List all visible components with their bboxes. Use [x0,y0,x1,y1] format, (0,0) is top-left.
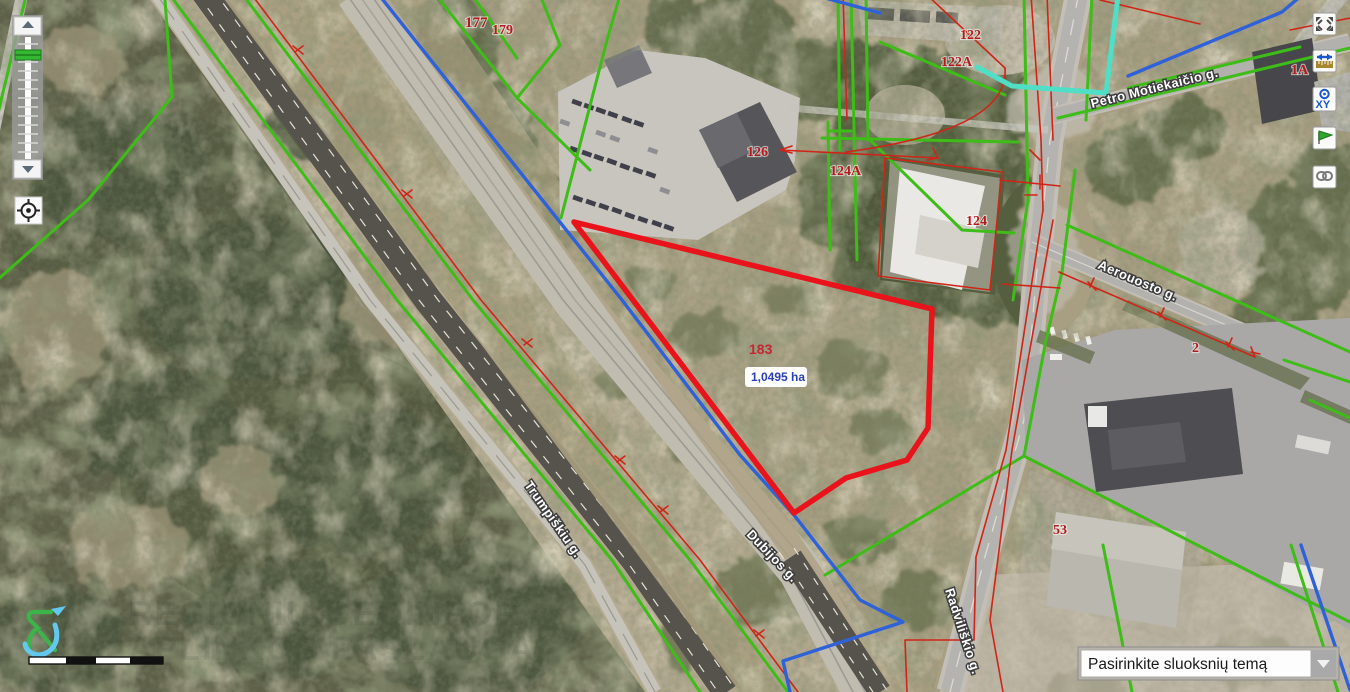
svg-text:126: 126 [747,145,768,160]
svg-text:XY: XY [1316,99,1331,111]
svg-text:183: 183 [749,341,773,357]
svg-text:REGIONIŲ GEOINFOR: REGIONIŲ GEOINFOR [128,595,521,633]
svg-text:122: 122 [960,28,981,43]
svg-text:1,0495 ha: 1,0495 ha [751,370,805,384]
svg-text:53: 53 [1053,523,1067,538]
svg-text:179: 179 [492,23,513,38]
svg-text:177: 177 [465,15,488,31]
svg-text:APLINKOS PASLAUGA: APLINKOS PASLAUGA [128,630,535,668]
svg-text:122A: 122A [941,55,973,70]
svg-text:124A: 124A [830,164,862,179]
svg-text:2: 2 [1192,341,1199,356]
svg-text:1A: 1A [1291,63,1309,78]
svg-text:124: 124 [966,214,987,229]
svg-text:Pasirinkite sluoksnių temą: Pasirinkite sluoksnių temą [1088,656,1268,673]
